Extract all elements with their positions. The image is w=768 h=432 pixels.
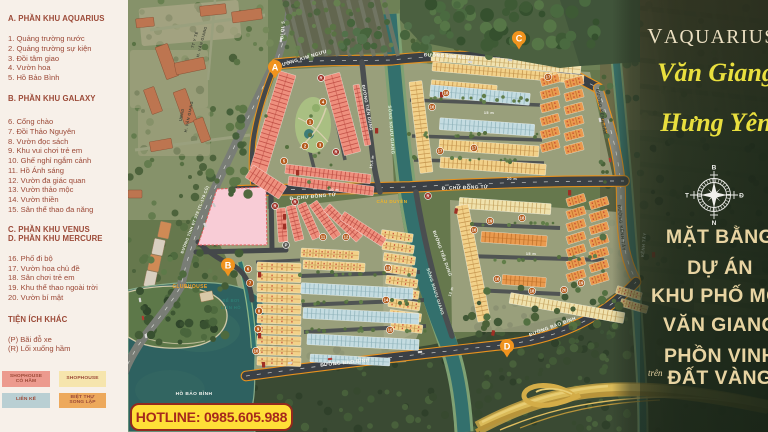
svg-text:15: 15: [388, 328, 393, 333]
svg-text:12: 12: [344, 235, 349, 240]
svg-text:R: R: [334, 150, 337, 155]
svg-text:30 m: 30 m: [329, 188, 339, 192]
svg-text:BỂ BƠI: BỂ BƠI: [222, 298, 239, 303]
svg-text:17: 17: [472, 146, 477, 151]
svg-text:20 m: 20 m: [507, 177, 517, 181]
svg-text:19: 19: [488, 219, 493, 224]
svg-text:D: D: [504, 342, 511, 352]
svg-text:CẦU DUYÊN: CẦU DUYÊN: [377, 197, 408, 204]
svg-text:14: 14: [384, 298, 389, 303]
svg-text:20: 20: [562, 288, 567, 293]
svg-text:B: B: [712, 165, 717, 172]
svg-text:A: A: [272, 63, 279, 73]
svg-text:18: 18: [520, 216, 525, 221]
svg-text:C: C: [516, 34, 523, 44]
svg-text:10: 10: [254, 349, 259, 354]
svg-text:16: 16: [430, 105, 435, 110]
svg-text:16: 16: [472, 228, 477, 233]
svg-text:B: B: [225, 261, 232, 271]
svg-text:15 m: 15 m: [526, 252, 536, 256]
svg-text:R: R: [319, 76, 322, 81]
svg-text:T: T: [685, 192, 689, 199]
svg-text:17: 17: [438, 149, 443, 154]
svg-text:16: 16: [495, 277, 500, 282]
svg-text:18: 18: [444, 91, 449, 96]
svg-text:CLUBHOUSE: CLUBHOUSE: [172, 284, 208, 290]
svg-text:P: P: [285, 243, 288, 248]
svg-text:N: N: [712, 220, 717, 225]
svg-text:13: 13: [386, 266, 391, 271]
svg-text:Đ: Đ: [739, 192, 744, 199]
svg-text:15 m: 15 m: [484, 111, 494, 115]
svg-text:19: 19: [579, 281, 584, 286]
svg-text:R: R: [273, 204, 276, 209]
svg-text:18: 18: [530, 289, 535, 294]
svg-text:LIÊN HỒ: LIÊN HỒ: [221, 305, 241, 310]
svg-text:17: 17: [546, 75, 551, 80]
svg-text:R: R: [426, 194, 429, 199]
svg-text:R: R: [293, 200, 296, 205]
svg-text:11: 11: [321, 235, 326, 240]
